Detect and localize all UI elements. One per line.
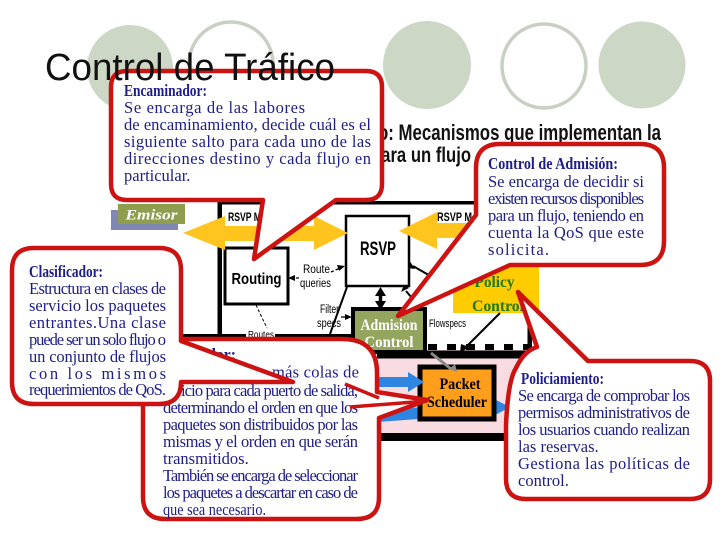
svg-text:Control: Control (472, 298, 525, 315)
svg-text:Filter: Filter (320, 304, 339, 316)
svg-text:solicita.: solicita. (488, 240, 549, 259)
svg-text:Route: Route (303, 264, 330, 276)
svg-text:Routing: Routing (232, 271, 282, 288)
svg-text:requerimientos de QoS.: requerimientos de QoS. (29, 380, 166, 399)
svg-text:queries: queries (300, 278, 331, 290)
svg-text:particular.: particular. (124, 166, 190, 185)
svg-text:para un flujo: para un flujo (371, 144, 471, 167)
svg-text:Packet: Packet (440, 376, 482, 393)
svg-text:que sea necesario.: que sea necesario. (163, 500, 266, 519)
svg-text:RSVP M: RSVP M (437, 210, 472, 224)
svg-text:Admision: Admision (361, 317, 418, 334)
svg-text:Control de Tráfico: Control de Tráfico (45, 47, 335, 89)
svg-text:Flowspecs: Flowspecs (429, 318, 466, 330)
svg-text:o: Mecanismos que implementan: o: Mecanismos que implementan la (378, 120, 662, 145)
svg-text:Control de Admisión:: Control de Admisión: (488, 154, 618, 173)
svg-text:Emisor: Emisor (124, 208, 177, 224)
svg-text:control.: control. (518, 471, 569, 490)
svg-text:Scheduler: Scheduler (427, 394, 487, 411)
svg-text:RSVP M: RSVP M (228, 210, 261, 224)
svg-text:specs: specs (317, 318, 341, 330)
svg-text:RSVP: RSVP (360, 239, 396, 260)
